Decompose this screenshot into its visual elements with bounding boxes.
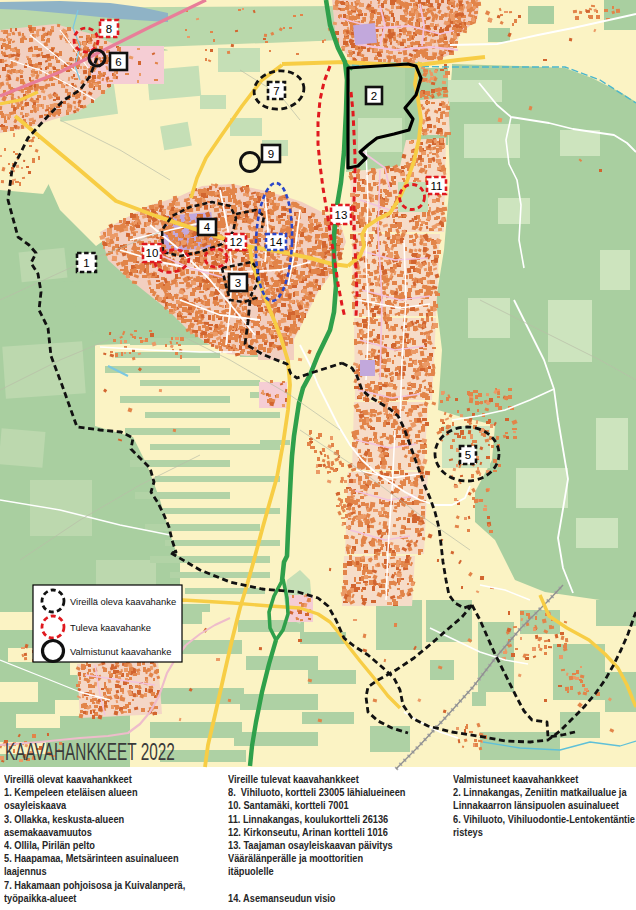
svg-text:Vireillä oleva kaavahanke: Vireillä oleva kaavahanke	[70, 596, 176, 607]
svg-text:7: 7	[273, 85, 279, 97]
svg-text:13: 13	[335, 209, 348, 221]
svg-text:5: 5	[465, 449, 471, 461]
svg-text:Tuleva kaavahanke: Tuleva kaavahanke	[70, 622, 151, 633]
svg-text:12: 12	[230, 236, 243, 248]
svg-text:3: 3	[235, 277, 241, 289]
svg-text:1: 1	[83, 257, 89, 269]
svg-text:Valmistunut kaavahanke: Valmistunut kaavahanke	[70, 646, 171, 657]
svg-text:2: 2	[371, 90, 377, 102]
svg-text:8: 8	[106, 23, 112, 35]
svg-text:11: 11	[431, 180, 443, 192]
svg-text:10: 10	[146, 247, 159, 259]
svg-text:9: 9	[268, 148, 274, 160]
svg-text:4: 4	[204, 221, 211, 233]
svg-text:14: 14	[270, 236, 283, 248]
svg-text:6: 6	[115, 56, 121, 68]
